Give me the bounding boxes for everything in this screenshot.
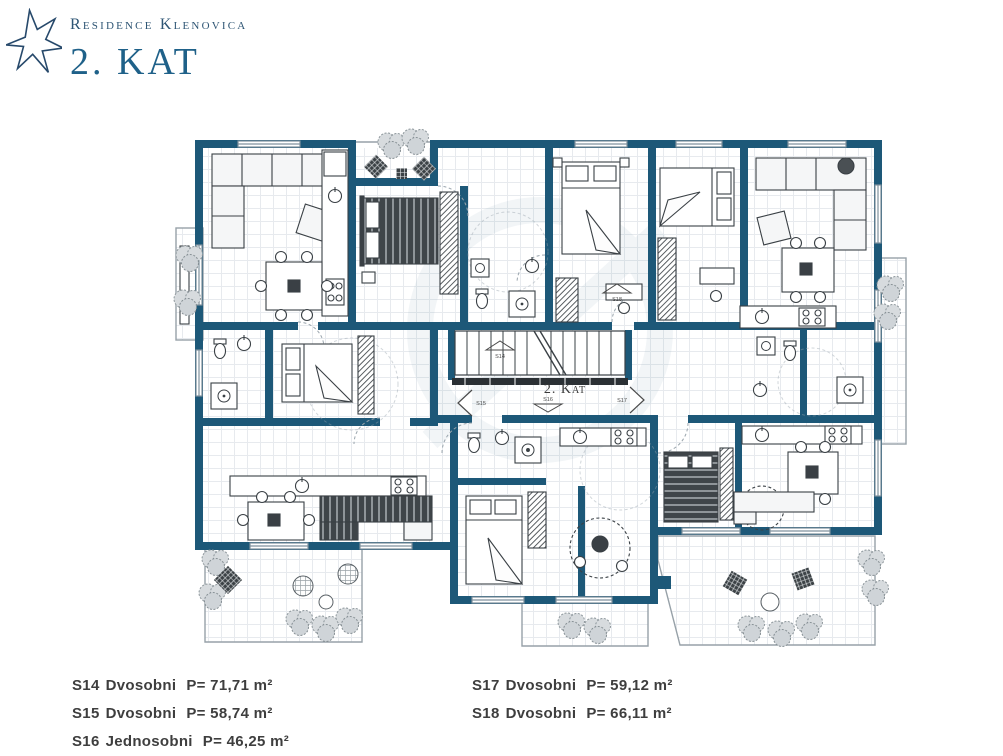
terrace-bottom-left: [205, 546, 362, 642]
floorplan: S14 S18 S15 S16 S17 2. Kat: [0, 0, 1003, 750]
unit-area: P= 46,25 m²: [203, 733, 289, 750]
unit-id: S15: [72, 705, 100, 722]
unit-type: Dvosobni: [106, 705, 177, 722]
unit-id: S17: [472, 677, 500, 694]
unit-area: P= 59,12 m²: [586, 677, 672, 694]
unit-type: Jednosobni: [106, 733, 193, 750]
marker-s18: S18: [612, 297, 622, 303]
terrace-bottom-right: [658, 536, 875, 645]
legend-item-s16: S16JednosobniP= 46,25 m²: [72, 728, 289, 756]
unit-type: Dvosobni: [106, 677, 177, 694]
marker-s15: S15: [476, 401, 486, 407]
marker-s16: S16: [543, 397, 553, 403]
marker-s14: S14: [495, 354, 505, 360]
bedroom-s15: [282, 336, 374, 414]
legend-item-s15: S15DvosobniP= 58,74 m²: [72, 700, 289, 728]
legend-right: S17DvosobniP= 59,12 m² S18DvosobniP= 66,…: [472, 672, 673, 728]
unit-area: P= 71,71 m²: [186, 677, 272, 694]
legend-item-s18: S18DvosobniP= 66,11 m²: [472, 700, 673, 728]
unit-type: Dvosobni: [506, 677, 577, 694]
unit-id: S18: [472, 705, 500, 722]
unit-id: S16: [72, 733, 100, 750]
unit-area: P= 58,74 m²: [186, 705, 272, 722]
unit-area: P= 66,11 m²: [586, 705, 671, 722]
legend-left: S14DvosobniP= 71,71 m² S15DvosobniP= 58,…: [72, 672, 289, 756]
unit-id: S14: [72, 677, 100, 694]
legend-item-s17: S17DvosobniP= 59,12 m²: [472, 672, 673, 700]
legend-item-s14: S14DvosobniP= 71,71 m²: [72, 672, 289, 700]
marker-s17: S17: [617, 398, 627, 404]
unit-type: Dvosobni: [506, 705, 577, 722]
plan-floor-label: 2. Kat: [544, 382, 586, 397]
